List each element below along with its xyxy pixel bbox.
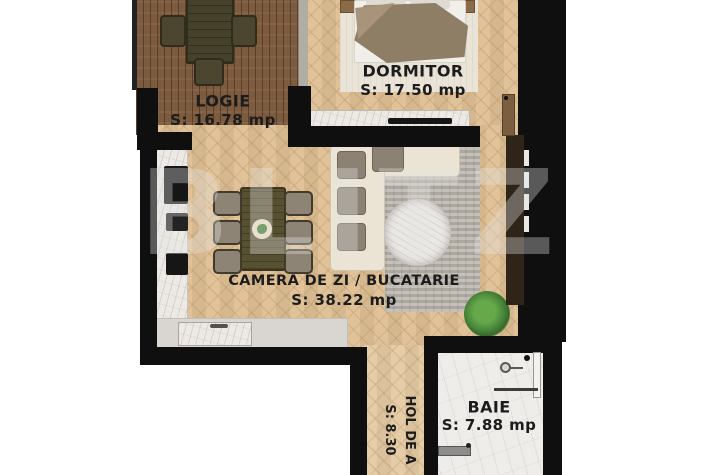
closet-handle bbox=[524, 150, 529, 166]
kitchen-appliance-small bbox=[166, 213, 188, 231]
shower-valve bbox=[524, 355, 530, 361]
wall-living-bottom bbox=[150, 347, 365, 365]
room-living-label: CAMERA DE ZI / BUCATARIE bbox=[228, 273, 460, 289]
dining-chair bbox=[213, 220, 242, 245]
wall-bedroom-stub bbox=[288, 86, 311, 147]
room-hol-area: S: 8.30 bbox=[379, 396, 399, 465]
shower-arm bbox=[509, 367, 523, 369]
room-dormitor-area: S: 17.50 mp bbox=[360, 81, 465, 99]
dining-chair bbox=[284, 249, 313, 274]
baie-door-handle bbox=[466, 443, 471, 448]
logie-chair-left bbox=[160, 15, 186, 47]
kitchen-appliance-oven bbox=[166, 253, 188, 275]
logie-dining-table bbox=[186, 0, 234, 64]
logie-chair-right bbox=[231, 15, 257, 47]
shower-rail bbox=[494, 388, 538, 391]
baie-glass-door bbox=[533, 352, 541, 398]
dining-chair bbox=[284, 220, 313, 245]
tv bbox=[388, 118, 452, 124]
wall-baie-right bbox=[543, 336, 562, 475]
closet-handle bbox=[524, 172, 529, 188]
dining-chair bbox=[213, 191, 242, 216]
wall-living-left bbox=[140, 148, 157, 365]
wall-baie-top bbox=[424, 336, 552, 353]
floor-plan-canvas: LOGIE S: 16.78 mp DORMITOR S: 17.50 mp C… bbox=[0, 0, 720, 475]
dining-chair bbox=[213, 249, 242, 274]
sofa-cushion bbox=[337, 187, 366, 215]
bedroom-door bbox=[502, 94, 515, 136]
wall-right bbox=[518, 0, 566, 342]
room-logie-area: S: 16.78 mp bbox=[170, 111, 275, 129]
logie-railing bbox=[132, 0, 137, 90]
closet-handle bbox=[524, 216, 529, 232]
sofa-cushion bbox=[337, 151, 366, 179]
kitchen-faucet bbox=[210, 324, 228, 328]
sofa-cushion bbox=[372, 144, 404, 172]
wall-bedroom-living-divider bbox=[288, 126, 480, 147]
room-living-area: S: 38.22 mp bbox=[291, 291, 396, 309]
wall-hall-left bbox=[350, 347, 367, 475]
room-logie-label: LOGIE bbox=[195, 92, 250, 111]
room-baie-area: S: 7.88 mp bbox=[442, 416, 537, 434]
kitchen-appliance-cooktop bbox=[164, 166, 188, 204]
dining-chair bbox=[284, 191, 313, 216]
closet-strip bbox=[506, 135, 524, 305]
sofa-cushion bbox=[337, 223, 366, 251]
room-baie-label: BAIE bbox=[467, 398, 510, 417]
wall-baie-left bbox=[424, 336, 438, 475]
room-hol-label: HOL DE A S: 8.30 bbox=[379, 396, 419, 465]
closet-handle bbox=[524, 194, 529, 210]
bedroom-door-handle bbox=[504, 96, 508, 100]
floor-plant bbox=[464, 291, 510, 337]
room-hol-name: HOL DE A bbox=[399, 396, 419, 465]
room-dormitor-label: DORMITOR bbox=[362, 62, 463, 81]
logie-chair-bottom bbox=[194, 58, 224, 86]
coffee-table bbox=[384, 199, 451, 266]
